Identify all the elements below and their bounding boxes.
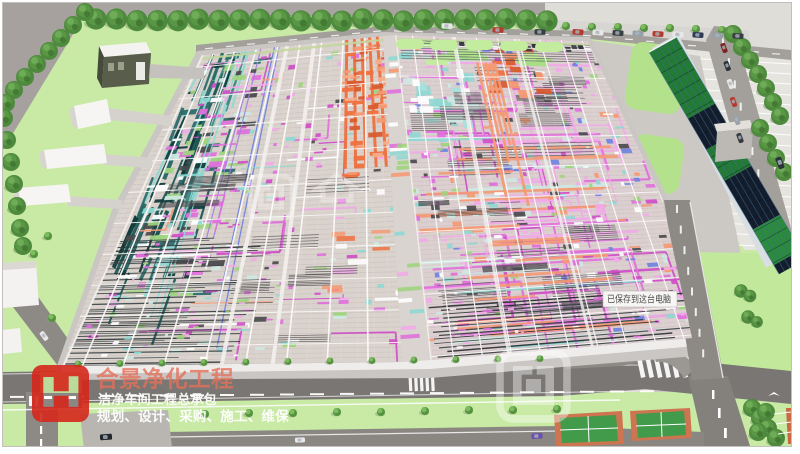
svg-text:已保存到这台电脑: 已保存到这台电脑 [607,294,671,306]
svg-text:规划、设计、采购、施工、维保: 规划、设计、采购、施工、维保 [97,408,289,424]
svg-text:合景净化工程: 合景净化工程 [96,366,234,392]
svg-text:洁净车间工程总承包: 洁净车间工程总承包 [98,392,217,407]
